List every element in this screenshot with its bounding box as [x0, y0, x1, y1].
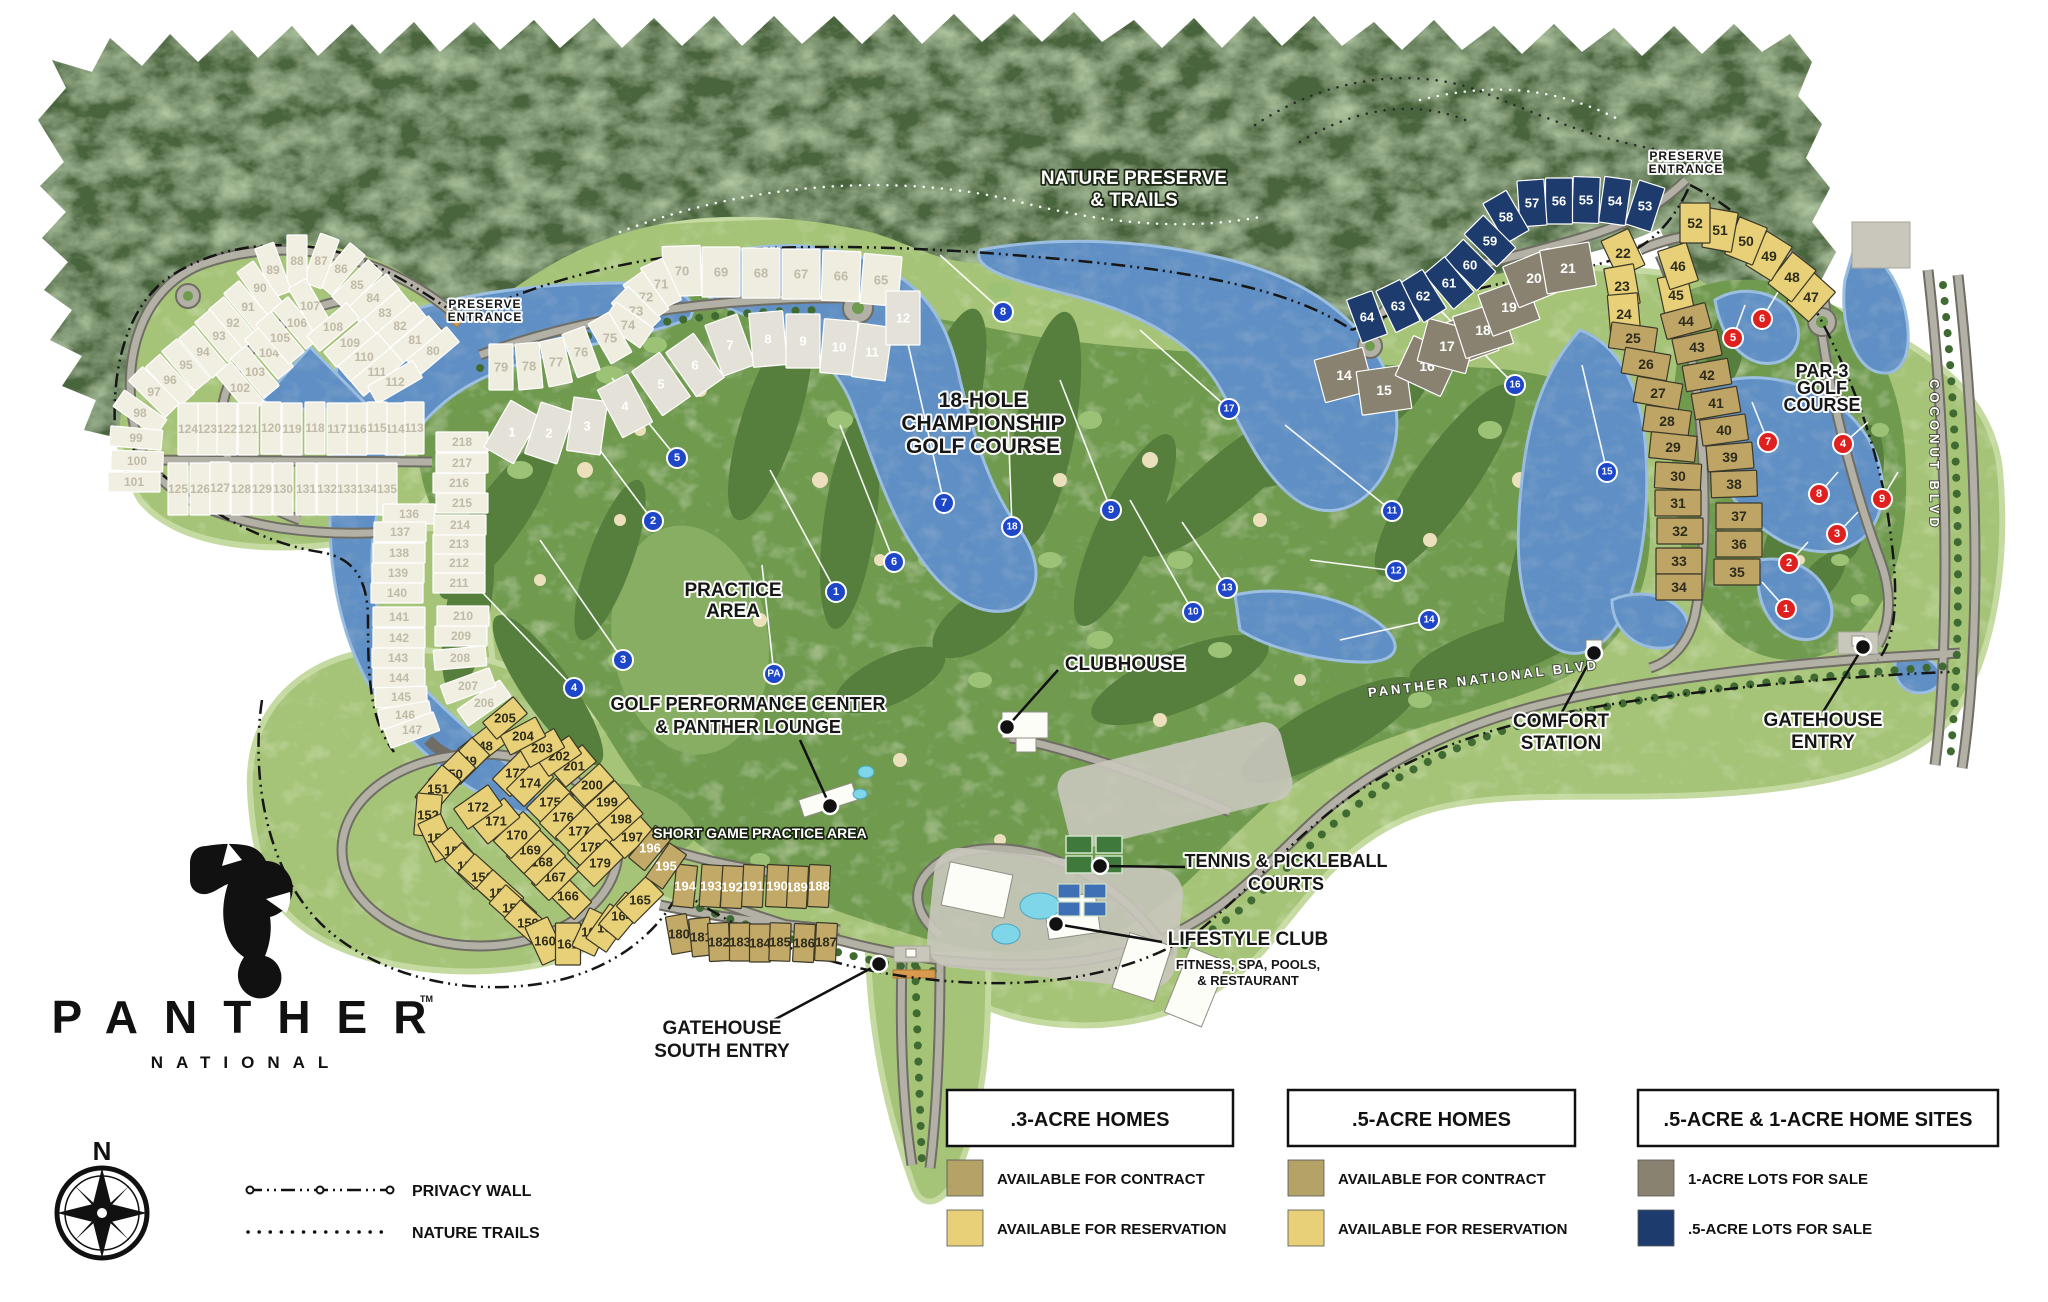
par3-hole-6: 6	[1752, 309, 1772, 329]
legend-title: .3-ACRE HOMES	[1011, 1109, 1170, 1131]
svg-text:108: 108	[323, 320, 343, 334]
legend-swatch	[1638, 1210, 1674, 1246]
svg-text:127: 127	[210, 481, 230, 495]
svg-text:ENTRANCE: ENTRANCE	[1649, 162, 1724, 176]
svg-text:185: 185	[769, 935, 791, 950]
svg-text:54: 54	[1608, 194, 1623, 209]
svg-text:204: 204	[512, 729, 534, 744]
svg-text:187: 187	[815, 935, 837, 950]
svg-text:83: 83	[378, 306, 392, 320]
svg-text:143: 143	[388, 651, 408, 665]
svg-text:14: 14	[1423, 615, 1435, 626]
svg-text:91: 91	[241, 300, 255, 314]
svg-text:188: 188	[808, 879, 830, 894]
svg-text:5: 5	[1730, 332, 1736, 344]
svg-text:118: 118	[305, 421, 325, 435]
svg-text:80: 80	[426, 344, 440, 358]
svg-text:207: 207	[458, 679, 478, 693]
lot-34: 34	[1656, 574, 1702, 600]
legend-swatch	[947, 1160, 983, 1196]
svg-text:5: 5	[657, 377, 664, 392]
svg-text:138: 138	[389, 546, 409, 560]
svg-text:106: 106	[287, 316, 307, 330]
championship-hole-7: 7	[934, 493, 954, 513]
svg-text:49: 49	[1761, 248, 1777, 264]
label-coconut-blvd: COCONUT BLVD	[1927, 379, 1942, 531]
svg-text:COURTS: COURTS	[1248, 874, 1324, 894]
legend-group-0: .3-ACRE HOMESAVAILABLE FOR CONTRACTAVAIL…	[947, 1090, 1233, 1246]
legend-item-label: AVAILABLE FOR RESERVATION	[997, 1221, 1226, 1238]
lot-9: 9	[786, 314, 820, 368]
svg-text:8: 8	[764, 332, 771, 347]
legend-item-label: AVAILABLE FOR CONTRACT	[997, 1171, 1205, 1188]
legend-title: .5-ACRE HOMES	[1352, 1109, 1511, 1131]
svg-text:211: 211	[449, 576, 469, 590]
label-preserve-entrance-left: PRESERVEENTRANCE	[448, 297, 523, 324]
svg-text:11: 11	[1387, 506, 1398, 517]
championship-hole-13: 13	[1217, 578, 1237, 598]
lot-21: 21	[1540, 242, 1597, 294]
lot-67: 67	[782, 249, 820, 299]
lot-33: 33	[1656, 548, 1702, 574]
lot-188: 188	[807, 864, 832, 907]
svg-text:94: 94	[196, 345, 210, 359]
svg-text:& RESTAURANT: & RESTAURANT	[1197, 973, 1299, 988]
lot-66: 66	[821, 250, 861, 301]
svg-text:134: 134	[357, 482, 377, 496]
svg-text:6: 6	[891, 556, 897, 568]
svg-text:9: 9	[799, 334, 806, 349]
svg-text:PRESERVE: PRESERVE	[448, 297, 521, 311]
lot-68: 68	[742, 248, 780, 298]
svg-text:GATEHOUSE: GATEHOUSE	[1764, 710, 1883, 731]
lot-52: 52	[1680, 203, 1710, 243]
svg-text:COCONUT BLVD: COCONUT BLVD	[1927, 379, 1942, 531]
svg-text:114: 114	[385, 422, 405, 436]
legend-lines: PRIVACY WALLNATURE TRAILS	[247, 1183, 541, 1242]
lot-31: 31	[1655, 490, 1701, 516]
svg-text:96: 96	[163, 373, 177, 387]
svg-text:15: 15	[1601, 467, 1613, 478]
svg-text:26: 26	[1638, 356, 1654, 372]
svg-text:43: 43	[1689, 339, 1705, 355]
lot-115: 115	[367, 402, 387, 454]
svg-text:130: 130	[273, 482, 293, 496]
svg-text:101: 101	[124, 475, 144, 489]
svg-text:2: 2	[650, 515, 656, 527]
legend-group-1: .5-ACRE HOMESAVAILABLE FOR CONTRACTAVAIL…	[1288, 1090, 1575, 1246]
legend-item-label: .5-ACRE LOTS FOR SALE	[1688, 1221, 1872, 1238]
svg-text:23: 23	[1614, 278, 1630, 294]
legend-item-label: AVAILABLE FOR RESERVATION	[1338, 1221, 1567, 1238]
lot-217: 217	[436, 453, 488, 473]
svg-text:174: 174	[519, 776, 541, 791]
lot-142: 142	[373, 628, 425, 648]
lot-79: 79	[489, 344, 513, 390]
lot-35: 35	[1714, 559, 1760, 585]
lot-99: 99	[109, 426, 163, 450]
svg-text:13: 13	[1221, 583, 1233, 594]
lot-129: 129	[252, 463, 272, 515]
svg-text:55: 55	[1579, 193, 1593, 208]
svg-text:37: 37	[1731, 508, 1747, 524]
svg-text:139: 139	[388, 566, 408, 580]
svg-text:3: 3	[1834, 528, 1840, 540]
par3-hole-8: 8	[1809, 484, 1829, 504]
svg-text:12: 12	[896, 311, 910, 326]
lot-32: 32	[1657, 518, 1703, 544]
svg-text:123: 123	[197, 422, 217, 436]
championship-hole-6: 6	[884, 552, 904, 572]
lot-138: 138	[373, 543, 425, 563]
svg-text:79: 79	[494, 360, 508, 375]
svg-text:9: 9	[1108, 504, 1114, 516]
svg-text:209: 209	[451, 629, 471, 643]
lot-192: 192	[720, 865, 745, 908]
svg-text:COURSE: COURSE	[1783, 395, 1860, 415]
championship-hole-10: 10	[1183, 602, 1203, 622]
svg-text:CLUBHOUSE: CLUBHOUSE	[1065, 654, 1185, 675]
svg-text:125: 125	[168, 482, 188, 496]
svg-text:24: 24	[1616, 306, 1632, 322]
label-short-game: SHORT GAME PRACTICE AREA	[653, 825, 866, 841]
svg-text:218: 218	[452, 435, 472, 449]
lot-55: 55	[1572, 177, 1601, 224]
lot-69: 69	[702, 247, 740, 297]
svg-text:212: 212	[449, 556, 469, 570]
lot-213: 213	[433, 534, 485, 554]
svg-text:120: 120	[261, 421, 281, 435]
svg-text:205: 205	[494, 711, 516, 726]
lot-117: 117	[327, 403, 347, 455]
legend-swatch	[1288, 1210, 1324, 1246]
lot-182: 182	[707, 922, 731, 961]
brand-tm: TM	[420, 994, 433, 1004]
svg-text:67: 67	[794, 267, 808, 282]
svg-text:199: 199	[596, 795, 618, 810]
lot-8: 8	[749, 311, 788, 368]
championship-hole-1: 1	[826, 582, 846, 602]
svg-text:GATEHOUSE: GATEHOUSE	[663, 1018, 782, 1039]
svg-text:141: 141	[389, 610, 409, 624]
lot-136: 136	[383, 504, 435, 524]
svg-text:87: 87	[314, 254, 328, 268]
lot-208: 208	[433, 646, 487, 670]
svg-text:22: 22	[1615, 245, 1631, 261]
parking-preserve-entrance	[1852, 222, 1910, 268]
championship-hole-4: 4	[564, 678, 584, 698]
par3-hole-5: 5	[1723, 328, 1743, 348]
svg-text:217: 217	[452, 456, 472, 470]
svg-text:147: 147	[402, 723, 422, 737]
svg-text:200: 200	[581, 778, 603, 793]
svg-text:191: 191	[742, 879, 764, 894]
gatehouse-south-building	[893, 946, 935, 978]
svg-text:66: 66	[834, 269, 848, 284]
svg-text:75: 75	[603, 331, 617, 346]
lot-183: 183	[729, 923, 751, 961]
svg-text:10: 10	[1187, 607, 1199, 618]
svg-text:117: 117	[327, 422, 347, 436]
svg-text:214: 214	[450, 518, 470, 532]
lot-116: 116	[347, 403, 367, 455]
svg-text:92: 92	[226, 316, 240, 330]
svg-text:194: 194	[674, 879, 696, 894]
svg-text:27: 27	[1650, 385, 1666, 401]
svg-text:63: 63	[1391, 299, 1405, 314]
legend-item-label: AVAILABLE FOR CONTRACT	[1338, 1171, 1546, 1188]
svg-text:172: 172	[467, 800, 489, 815]
svg-text:1: 1	[833, 586, 839, 598]
svg-text:142: 142	[389, 631, 409, 645]
svg-text:190: 190	[766, 879, 788, 894]
svg-text:GOLF PERFORMANCE CENTER: GOLF PERFORMANCE CENTER	[610, 694, 885, 714]
lot-190: 190	[765, 864, 790, 907]
svg-text:85: 85	[350, 278, 364, 292]
svg-text:4: 4	[1840, 438, 1847, 450]
svg-text:122: 122	[217, 422, 237, 436]
lot-38: 38	[1711, 470, 1758, 498]
svg-text:112: 112	[385, 375, 405, 389]
svg-text:PRESERVE: PRESERVE	[1649, 149, 1722, 163]
svg-text:2: 2	[1786, 557, 1792, 569]
svg-text:68: 68	[754, 266, 768, 281]
lot-120: 120	[261, 402, 281, 454]
svg-text:42: 42	[1699, 367, 1715, 383]
lot-216: 216	[433, 473, 485, 493]
svg-text:8: 8	[1816, 488, 1822, 500]
par3-hole-9: 9	[1872, 489, 1892, 509]
lot-28: 28	[1642, 405, 1691, 437]
svg-text:56: 56	[1552, 194, 1566, 209]
svg-text:NATURE PRESERVE: NATURE PRESERVE	[1041, 168, 1227, 189]
svg-text:131: 131	[296, 482, 316, 496]
svg-text:11: 11	[865, 345, 879, 360]
championship-hole-16: 16	[1505, 375, 1525, 395]
svg-text:25: 25	[1625, 330, 1641, 346]
svg-text:9: 9	[1879, 493, 1885, 505]
panther-head-mark	[190, 844, 293, 998]
svg-text:145: 145	[391, 690, 411, 704]
svg-text:196: 196	[639, 841, 661, 856]
svg-text:84: 84	[366, 291, 380, 305]
svg-text:8: 8	[1000, 306, 1006, 318]
svg-text:206: 206	[474, 696, 494, 710]
svg-text:57: 57	[1525, 196, 1539, 211]
lot-209: 209	[435, 626, 487, 646]
lot-54: 54	[1598, 176, 1631, 225]
lot-132: 132	[317, 463, 337, 515]
svg-text:102: 102	[230, 381, 250, 395]
svg-text:136: 136	[399, 507, 419, 521]
svg-text:SOUTH ENTRY: SOUTH ENTRY	[654, 1041, 790, 1062]
svg-text:17: 17	[1223, 404, 1235, 415]
compass-north-label: N	[93, 1136, 112, 1166]
svg-text:46: 46	[1670, 258, 1686, 274]
lot-210: 210	[437, 606, 489, 626]
svg-text:31: 31	[1670, 495, 1686, 511]
svg-text:166: 166	[557, 889, 579, 904]
lot-3: 3	[566, 397, 607, 455]
svg-text:86: 86	[334, 262, 348, 276]
lot-121: 121	[238, 403, 258, 455]
lot-56: 56	[1546, 178, 1573, 224]
svg-text:110: 110	[354, 350, 374, 364]
lot-143: 143	[372, 648, 424, 668]
svg-text:33: 33	[1671, 553, 1687, 569]
legend-title: .5-ACRE & 1-ACRE HOME SITES	[1664, 1109, 1973, 1131]
svg-text:93: 93	[212, 329, 226, 343]
svg-text:195: 195	[655, 859, 677, 874]
svg-text:133: 133	[337, 482, 357, 496]
par3-hole-2: 2	[1779, 553, 1799, 573]
championship-hole-11: 11	[1382, 501, 1402, 521]
lot-137: 137	[374, 522, 426, 542]
svg-text:60: 60	[1463, 258, 1477, 273]
svg-text:41: 41	[1708, 395, 1724, 411]
svg-text:52: 52	[1687, 215, 1703, 231]
championship-hole-5: 5	[667, 448, 687, 468]
svg-text:137: 137	[390, 525, 410, 539]
svg-text:CHAMPIONSHIP: CHAMPIONSHIP	[901, 412, 1064, 435]
par3-hole-4: 4	[1833, 434, 1853, 454]
lot-127: 127	[210, 462, 230, 514]
svg-text:29: 29	[1665, 439, 1681, 455]
lot-78: 78	[515, 342, 543, 390]
brand-sub: NATIONAL	[151, 1053, 342, 1072]
svg-text:59: 59	[1483, 234, 1497, 249]
svg-text:ENTRY: ENTRY	[1791, 732, 1855, 753]
label-comfort-station: COMFORTSTATION	[1513, 711, 1609, 754]
svg-text:76: 76	[574, 345, 588, 360]
lot-131: 131	[296, 463, 316, 515]
svg-text:119: 119	[282, 422, 302, 436]
svg-text:17: 17	[1439, 338, 1455, 354]
svg-text:98: 98	[133, 406, 147, 420]
svg-text:TENNIS & PICKLEBALL: TENNIS & PICKLEBALL	[1184, 851, 1387, 871]
lot-141: 141	[373, 607, 425, 627]
championship-hole-9: 9	[1101, 500, 1121, 520]
svg-text:40: 40	[1716, 422, 1732, 438]
svg-text:14: 14	[1336, 367, 1352, 383]
svg-text:3: 3	[620, 654, 626, 666]
svg-text:215: 215	[452, 496, 472, 510]
svg-text:& PANTHER LOUNGE: & PANTHER LOUNGE	[655, 717, 841, 737]
svg-text:171: 171	[485, 814, 507, 829]
championship-hole-12: 12	[1386, 561, 1406, 581]
svg-text:213: 213	[449, 537, 469, 551]
legend-swatch	[947, 1210, 983, 1246]
lot-218: 218	[436, 432, 488, 452]
par3-hole-7: 7	[1758, 432, 1778, 452]
label-preserve-entrance-right: PRESERVEENTRANCE	[1649, 149, 1724, 176]
svg-text:12: 12	[1390, 566, 1402, 577]
lot-119: 119	[282, 403, 302, 455]
legend-swatch	[1638, 1160, 1674, 1196]
svg-text:193: 193	[700, 879, 722, 894]
svg-text:182: 182	[708, 935, 730, 950]
brand-name: PANTHER	[52, 991, 453, 1043]
lot-139: 139	[372, 563, 424, 583]
svg-text:97: 97	[147, 385, 161, 399]
svg-text:90: 90	[253, 281, 267, 295]
svg-text:179: 179	[589, 856, 611, 871]
lot-114: 114	[385, 403, 405, 455]
svg-text:126: 126	[190, 482, 210, 496]
svg-text:30: 30	[1670, 468, 1686, 484]
lot-36: 36	[1716, 531, 1762, 557]
svg-text:STATION: STATION	[1521, 733, 1602, 754]
svg-text:186: 186	[793, 936, 815, 951]
svg-text:10: 10	[832, 340, 846, 355]
par3-hole-3: 3	[1827, 524, 1847, 544]
lot-212: 212	[433, 553, 485, 573]
svg-text:AREA: AREA	[706, 601, 760, 622]
lot-134: 134	[357, 463, 377, 515]
svg-text:3: 3	[583, 419, 590, 434]
svg-text:124: 124	[178, 422, 198, 436]
svg-text:103: 103	[245, 365, 265, 379]
svg-text:180: 180	[668, 927, 690, 942]
lot-122: 122	[217, 403, 237, 455]
svg-text:100: 100	[127, 454, 147, 468]
svg-text:5: 5	[674, 452, 680, 464]
svg-text:61: 61	[1442, 276, 1456, 291]
championship-hole-3: 3	[613, 650, 633, 670]
svg-text:32: 32	[1672, 523, 1688, 539]
svg-text:192: 192	[721, 880, 743, 895]
lot-215: 215	[436, 493, 488, 513]
lot-39: 39	[1706, 442, 1754, 472]
svg-text:COMFORT: COMFORT	[1513, 711, 1609, 732]
svg-text:160: 160	[534, 934, 556, 949]
svg-text:105: 105	[270, 331, 290, 345]
svg-text:121: 121	[238, 422, 258, 436]
svg-text:50: 50	[1738, 233, 1754, 249]
svg-text:210: 210	[453, 609, 473, 623]
svg-text:116: 116	[347, 422, 367, 436]
lot-40: 40	[1699, 414, 1748, 446]
legend-line-label: PRIVACY WALL	[412, 1183, 532, 1200]
svg-text:& TRAILS: & TRAILS	[1090, 190, 1178, 211]
svg-text:2: 2	[545, 426, 552, 441]
svg-text:78: 78	[522, 359, 536, 374]
svg-text:38: 38	[1726, 476, 1742, 492]
svg-text:35: 35	[1729, 564, 1745, 580]
lot-128: 128	[231, 463, 251, 515]
svg-text:77: 77	[549, 355, 563, 370]
championship-hole-PA: PA	[764, 664, 784, 684]
lot-140: 140	[371, 583, 423, 603]
svg-text:208: 208	[450, 651, 470, 665]
svg-text:81: 81	[408, 333, 422, 347]
svg-text:1: 1	[508, 425, 515, 440]
svg-text:44: 44	[1678, 313, 1694, 329]
svg-text:107: 107	[300, 299, 320, 313]
svg-text:20: 20	[1526, 270, 1542, 286]
par3-hole-1: 1	[1776, 599, 1796, 619]
lot-124: 124	[178, 403, 198, 455]
svg-text:132: 132	[317, 482, 337, 496]
compass-rose: N	[57, 1136, 147, 1258]
legend-group-2: .5-ACRE & 1-ACRE HOME SITES1-ACRE LOTS F…	[1638, 1090, 1998, 1246]
svg-text:6: 6	[691, 358, 698, 373]
svg-text:GOLF COURSE: GOLF COURSE	[906, 435, 1060, 458]
lot-126: 126	[190, 463, 210, 515]
site-plan-map: 8081828384858687888990919293949596979899…	[0, 0, 2048, 1302]
label-lifestyle-club: LIFESTYLE CLUB	[1168, 929, 1328, 950]
championship-hole-18: 18	[1002, 517, 1022, 537]
